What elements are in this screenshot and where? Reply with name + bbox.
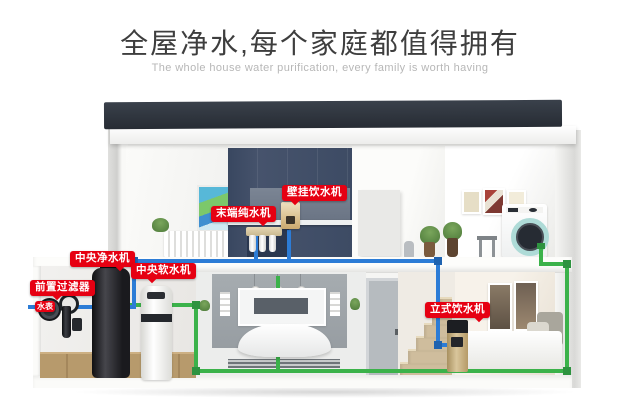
standing-dispenser-unit [447, 320, 468, 372]
central-softener-unit [141, 286, 172, 380]
label-terminal-purifier: 末端纯水机 [211, 206, 276, 222]
bathroom-plant [199, 300, 210, 311]
wall-dispenser-slot [286, 216, 295, 224]
label-standing-dispenser: 立式饮水机 [425, 302, 490, 318]
radiator [164, 231, 230, 258]
softener-band [141, 314, 172, 322]
pendant-lamp [277, 274, 278, 286]
wall-mounted-dispenser [281, 202, 300, 229]
standing-dispenser-slot [451, 337, 463, 347]
towel-shelf-right [330, 292, 340, 316]
page-title: 全屋净水,每个家庭都值得拥有 [0, 22, 640, 62]
pre-filter-body [62, 306, 71, 338]
bathroom-rug [228, 359, 340, 368]
label-water-meter: 水表 [35, 301, 55, 312]
leaning-panel [358, 190, 400, 256]
page-subtitle: The whole house water purification, ever… [0, 62, 640, 74]
bed [466, 331, 562, 369]
label-pre-filter: 前置过滤器 [30, 280, 95, 296]
vase [404, 241, 414, 258]
softener-display [147, 292, 165, 299]
label-central-purifier: 中央净水机 [70, 251, 135, 267]
pre-filter-cup [72, 318, 82, 331]
laundry-plant-pot [447, 238, 458, 257]
label-wall-dispenser: 壁挂饮水机 [282, 185, 347, 201]
towel-shelf-left [220, 292, 230, 316]
roof [104, 100, 562, 129]
stool [477, 236, 497, 258]
bathroom-mirror [254, 298, 308, 314]
under-sink-purifier [246, 227, 282, 236]
pendant-lamp [254, 274, 255, 286]
washer-door [511, 218, 549, 256]
house-left-wall [108, 128, 128, 259]
laundry-picture-1 [462, 190, 481, 214]
promo-canvas: 全屋净水,每个家庭都值得拥有 The whole house water pur… [0, 0, 640, 402]
bathroom-vanity-panel [238, 288, 326, 326]
bedroom-art-1 [488, 283, 512, 331]
central-purifier-tank [92, 268, 130, 378]
dining-plant [152, 218, 169, 232]
standing-dispenser-top [447, 320, 468, 333]
label-central-softener: 中央软水机 [131, 263, 196, 279]
bathtub [238, 324, 331, 357]
washing-machine [502, 204, 547, 258]
pendant-lamp [300, 274, 301, 286]
bathroom-plant-2 [350, 298, 360, 310]
hallway-plant-pot [424, 242, 435, 258]
